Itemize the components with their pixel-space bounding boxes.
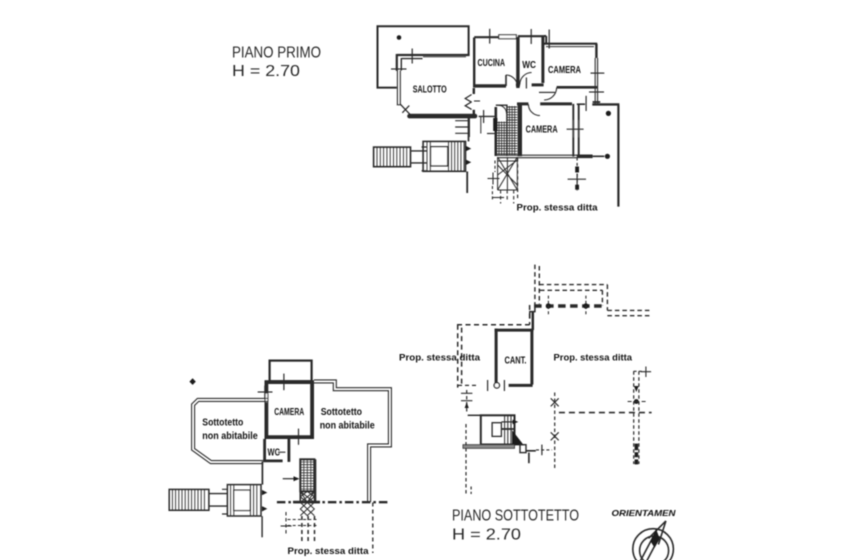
svg-text:Sottotetto: Sottotetto (202, 418, 243, 429)
svg-text:non abitabile: non abitabile (320, 421, 375, 432)
svg-text:WC: WC (522, 60, 536, 71)
svg-text:SALOTTO: SALOTTO (413, 85, 447, 96)
svg-text:Sottotetto: Sottotetto (321, 407, 362, 418)
svg-text:Prop. stessa ditta: Prop. stessa ditta (554, 353, 633, 364)
svg-text:CAMERA: CAMERA (526, 124, 558, 135)
svg-text:CAMERA: CAMERA (548, 65, 581, 76)
svg-text:H = 2.70: H = 2.70 (452, 527, 521, 544)
svg-text:Prop. stessa ditta: Prop. stessa ditta (288, 546, 370, 557)
svg-text:CANT.: CANT. (505, 355, 527, 366)
svg-text:non abitabile: non abitabile (202, 431, 258, 442)
svg-text:PIANO PRIMO: PIANO PRIMO (232, 45, 321, 62)
svg-text:H = 2.70: H = 2.70 (232, 63, 300, 80)
svg-text:Prop. stessa ditta: Prop. stessa ditta (517, 203, 599, 214)
svg-text:CUCINA: CUCINA (478, 58, 506, 69)
svg-text:ORIENTAMEN: ORIENTAMEN (612, 508, 677, 518)
svg-text:PIANO SOTTOTETTO: PIANO SOTTOTETTO (452, 508, 579, 525)
svg-text:WC: WC (268, 448, 281, 459)
svg-text:CAMERA: CAMERA (274, 407, 304, 418)
svg-text:Prop. stessa ditta: Prop. stessa ditta (399, 353, 481, 364)
